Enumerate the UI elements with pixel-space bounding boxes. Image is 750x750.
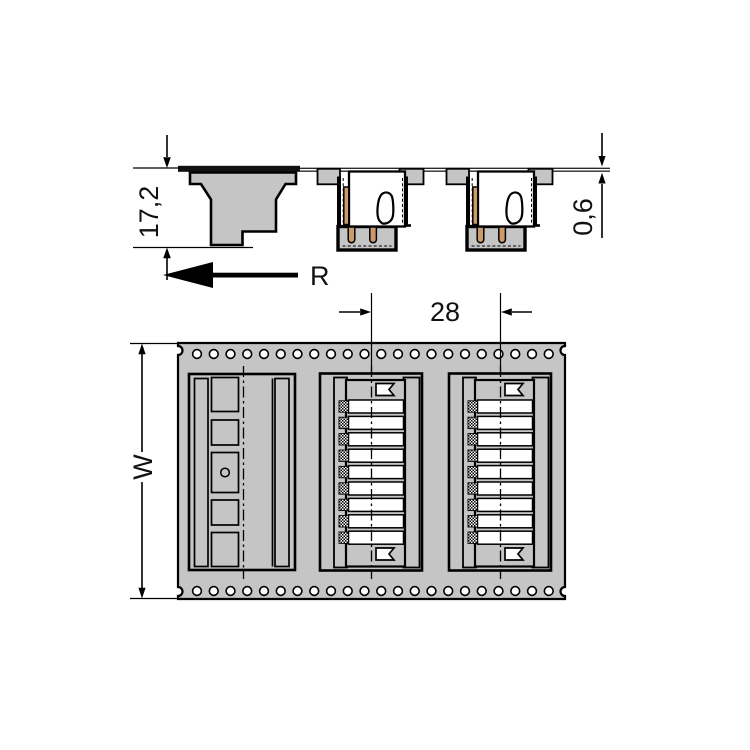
tape-reel-technical-drawing: 17,2 0,6 R <box>0 0 750 750</box>
reel-direction-arrow-shaft <box>212 273 298 278</box>
connector-pocket-section <box>318 169 424 250</box>
pocket-rail-right <box>275 379 289 567</box>
reel-direction: R <box>163 261 330 291</box>
dimension-tape-thickness: 0,6 <box>568 133 606 238</box>
dimension-height-label: 17,2 <box>134 186 164 239</box>
solder-pin-right <box>370 227 377 243</box>
connector-pocket-top-2 <box>449 366 551 579</box>
dimension-tape-thickness-label: 0,6 <box>568 198 598 236</box>
connector-pocket-top <box>320 366 422 579</box>
pocket-rim-left <box>318 169 341 185</box>
side-view: 17,2 0,6 R <box>133 133 610 291</box>
dimension-pitch-label: 28 <box>430 297 460 327</box>
empty-pocket-section <box>178 166 300 245</box>
pocket-step <box>212 378 239 412</box>
dimension-tape-width-label: W <box>128 454 158 480</box>
connector-body-section <box>349 172 405 227</box>
dimension-tape-width: W <box>128 344 181 599</box>
pocket-flange-bar <box>178 166 300 171</box>
connector-pocket-section-2 <box>447 169 553 250</box>
pocket-step <box>212 453 239 493</box>
lever-opening <box>377 192 393 223</box>
contact-strip <box>344 187 349 225</box>
empty-pocket-top <box>189 366 295 579</box>
pocket-step <box>212 533 239 567</box>
reel-direction-label: R <box>310 261 330 291</box>
pocket-step <box>212 420 239 445</box>
empty-pocket-profile <box>190 173 296 246</box>
pocket-step <box>212 500 239 525</box>
pocket-rail-left <box>195 379 209 567</box>
drawing-canvas: 17,2 0,6 R <box>0 0 750 750</box>
solder-pin-left <box>348 227 355 243</box>
top-view: 28 W <box>128 293 565 599</box>
pocket-deep-cavity <box>338 227 396 251</box>
reel-direction-arrow-icon <box>163 262 213 288</box>
